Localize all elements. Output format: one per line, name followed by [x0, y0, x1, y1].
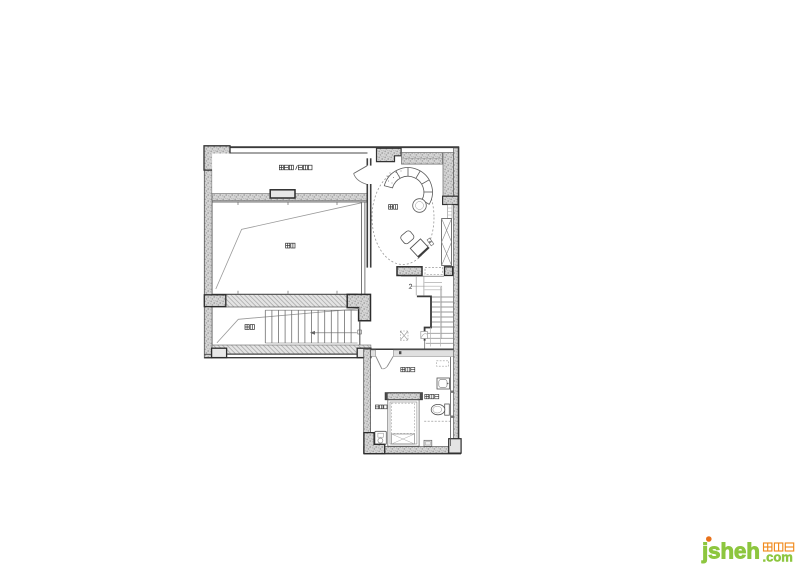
svg-text:jsheh: jsheh — [701, 539, 760, 564]
svg-text:.com: .com — [763, 550, 793, 564]
